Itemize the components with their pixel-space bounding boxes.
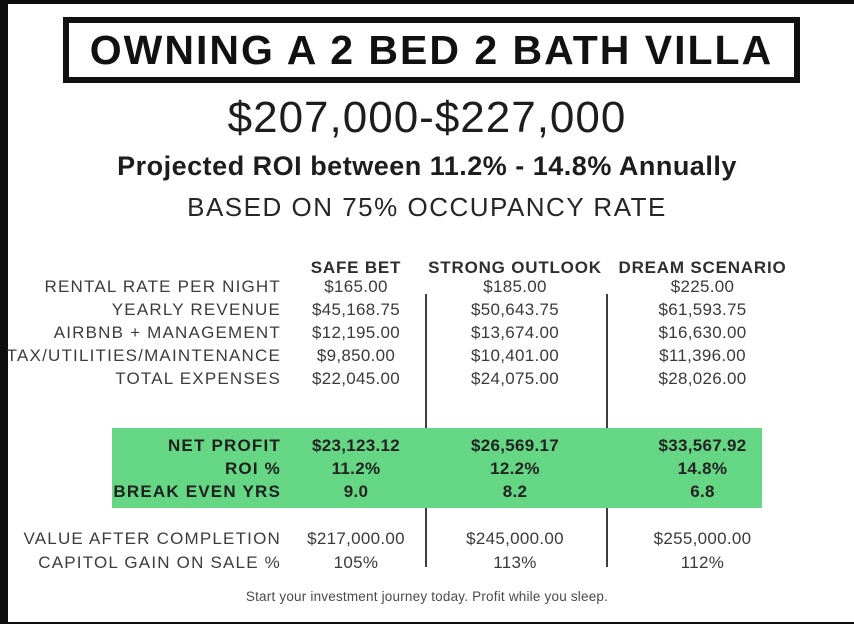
row-label: BREAK EVEN YRS: [20, 480, 287, 503]
cell-value: $9,850.00: [287, 344, 425, 367]
cell-value: 112%: [605, 551, 800, 575]
cell-value: 105%: [287, 551, 425, 575]
expenses-table: SAFE BET STRONG OUTLOOK DREAM SCENARIO R…: [20, 252, 820, 390]
cell-value: $45,168.75: [287, 298, 425, 321]
row-label: TAX/UTILITIES/MAINTENANCE: [20, 344, 287, 367]
occupancy-line: BASED ON 75% OCCUPANCY RATE: [0, 192, 854, 223]
projected-roi-line: Projected ROI between 11.2% - 14.8% Annu…: [0, 151, 854, 182]
cell-value: $23,123.12: [287, 434, 425, 457]
frame-top: [0, 0, 854, 4]
page-title: OWNING A 2 BED 2 BATH VILLA: [90, 27, 773, 74]
cell-value: $22,045.00: [287, 367, 425, 390]
cell-value: 12.2%: [425, 457, 605, 480]
villa-investment-infographic: OWNING A 2 BED 2 BATH VILLA $207,000-$22…: [0, 0, 854, 624]
cell-value: $12,195.00: [287, 321, 425, 344]
cell-value: 8.2: [425, 480, 605, 503]
cell-value: $24,075.00: [425, 367, 605, 390]
cell-value: 11.2%: [287, 457, 425, 480]
row-label: NET PROFIT: [20, 434, 287, 457]
row-label: TOTAL EXPENSES: [20, 367, 287, 390]
row-label: CAPITOL GAIN ON SALE %: [20, 551, 287, 575]
cell-value: $33,567.92: [605, 434, 800, 457]
cell-value: $26,569.17: [425, 434, 605, 457]
cell-value: 113%: [425, 551, 605, 575]
profit-table: NET PROFIT $23,123.12 $26,569.17 $33,567…: [20, 434, 820, 503]
row-label: AIRBNB + MANAGEMENT: [20, 321, 287, 344]
row-label: VALUE AFTER COMPLETION: [20, 527, 287, 551]
footer-tagline: Start your investment journey today. Pro…: [0, 589, 854, 604]
cell-value: $61,593.75: [605, 298, 800, 321]
cell-value: 9.0: [287, 480, 425, 503]
hero-section: $207,000-$227,000 Projected ROI between …: [0, 94, 854, 223]
cell-value: $225.00: [605, 275, 800, 298]
cell-value: $217,000.00: [287, 527, 425, 551]
cell-value: $13,674.00: [425, 321, 605, 344]
cell-value: 14.8%: [605, 457, 800, 480]
cell-value: $16,630.00: [605, 321, 800, 344]
cell-value: $255,000.00: [605, 527, 800, 551]
cell-value: $245,000.00: [425, 527, 605, 551]
price-range: $207,000-$227,000: [0, 94, 854, 142]
cell-value: $165.00: [287, 275, 425, 298]
cell-value: $185.00: [425, 275, 605, 298]
cell-value: $50,643.75: [425, 298, 605, 321]
sale-value-table: VALUE AFTER COMPLETION $217,000.00 $245,…: [20, 527, 820, 575]
cell-value: $11,396.00: [605, 344, 800, 367]
cell-value: 6.8: [605, 480, 800, 503]
row-label: YEARLY REVENUE: [20, 298, 287, 321]
cell-value: $10,401.00: [425, 344, 605, 367]
row-label: ROI %: [20, 457, 287, 480]
cell-value: $28,026.00: [605, 367, 800, 390]
title-banner: OWNING A 2 BED 2 BATH VILLA: [63, 17, 800, 83]
row-label: RENTAL RATE PER NIGHT: [20, 275, 287, 298]
